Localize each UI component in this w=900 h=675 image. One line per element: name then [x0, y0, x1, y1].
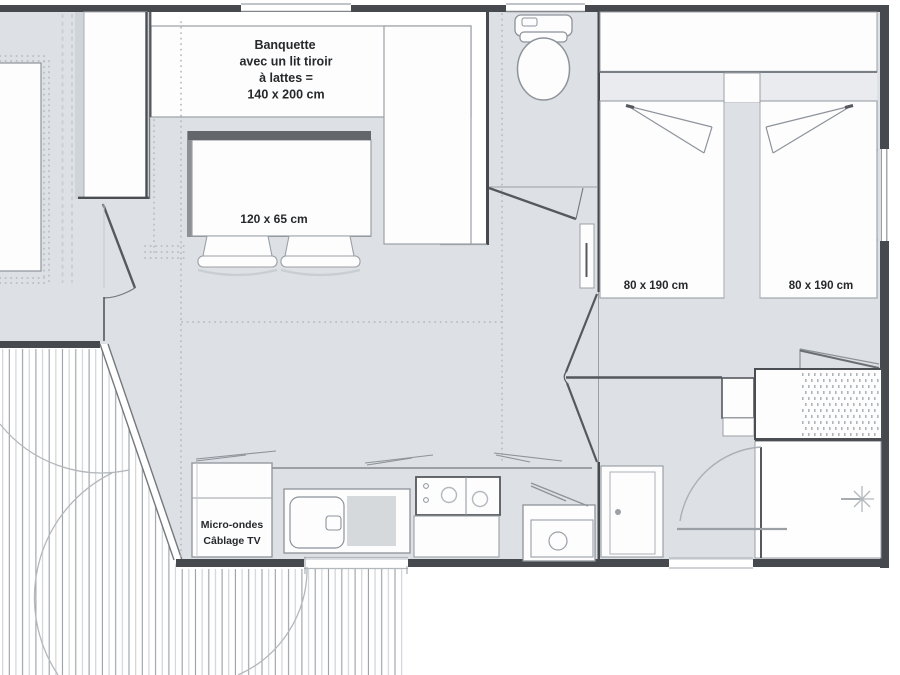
svg-text:140 x 200 cm: 140 x 200 cm — [247, 88, 324, 102]
svg-text:Micro-ondes: Micro-ondes — [201, 519, 264, 531]
svg-text:Câblage TV: Câblage TV — [203, 535, 260, 547]
svg-text:avec un lit tiroir: avec un lit tiroir — [239, 55, 332, 69]
svg-text:Banquette: Banquette — [254, 38, 315, 52]
svg-text:120 x 65 cm: 120 x 65 cm — [240, 212, 307, 226]
svg-text:80 x 190 cm: 80 x 190 cm — [789, 280, 854, 292]
svg-text:à lattes =: à lattes = — [259, 71, 313, 85]
svg-text:80 x 190 cm: 80 x 190 cm — [624, 280, 689, 292]
